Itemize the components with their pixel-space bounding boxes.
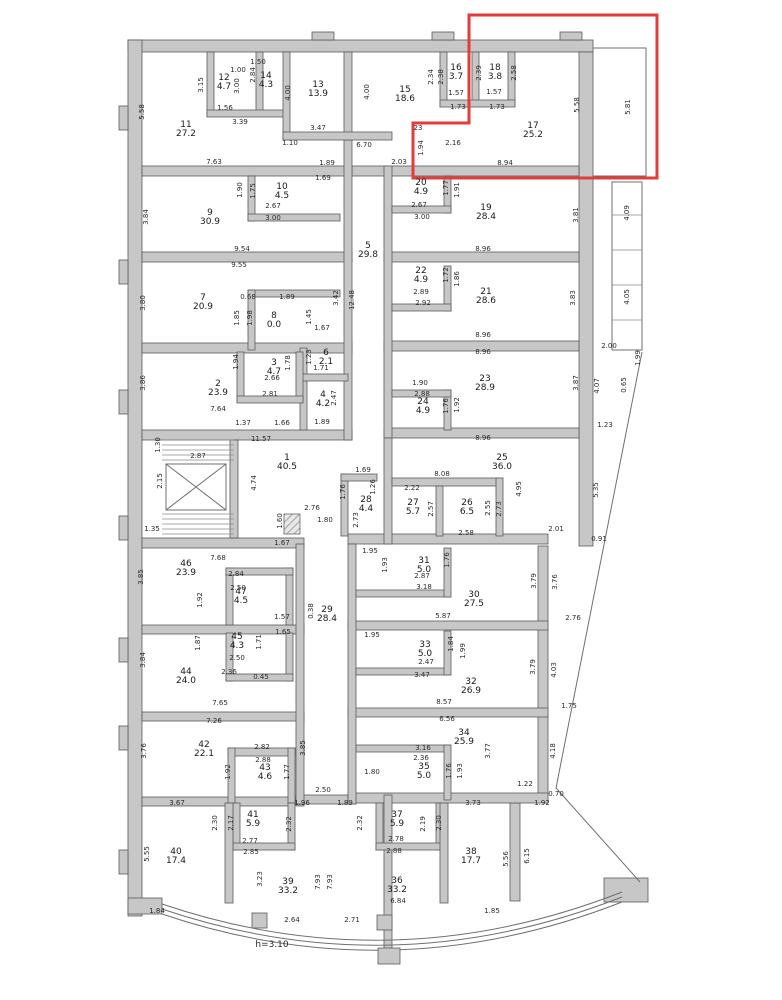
dimension-label: 3.80 bbox=[139, 295, 147, 311]
dimension-label: 3.15 bbox=[197, 77, 205, 93]
dimension-label: 3.79 bbox=[530, 573, 538, 589]
dimension-label: 1.77 bbox=[283, 764, 291, 780]
dimension-label: 2.01 bbox=[548, 525, 564, 533]
room-label-10: 104.5 bbox=[275, 183, 289, 201]
dimension-label: 2.55 bbox=[484, 500, 492, 516]
dimension-label: 3.39 bbox=[232, 118, 248, 126]
room-label-38: 3817.7 bbox=[461, 848, 481, 866]
dimension-label: 2.17 bbox=[227, 815, 235, 831]
room-label-23: 2328.9 bbox=[475, 375, 495, 393]
dimension-label: 1.76 bbox=[339, 484, 347, 500]
dimension-label: 1.72 bbox=[442, 267, 450, 283]
dimension-label: 3.81 bbox=[572, 207, 580, 223]
dimension-label: 4.03 bbox=[550, 662, 558, 678]
dimension-label: 1.22 bbox=[517, 780, 533, 788]
dimension-label: 1.89 bbox=[279, 293, 295, 301]
dimension-label: 2.64 bbox=[284, 916, 300, 924]
dimension-label: 1.73 bbox=[450, 103, 466, 111]
dimension-label: 7.65 bbox=[212, 699, 228, 707]
room-label-21: 2128.6 bbox=[476, 288, 496, 306]
dimension-label: 1.75 bbox=[561, 702, 577, 710]
dimension-label: 1.85 bbox=[484, 907, 500, 915]
dimension-label: 3.16 bbox=[415, 744, 431, 752]
room-label-15: 1518.6 bbox=[395, 86, 415, 104]
dimension-label: 1.92 bbox=[534, 799, 550, 807]
dimension-label: 7.64 bbox=[210, 405, 226, 413]
room-label-18: 183.8 bbox=[488, 64, 502, 82]
dimension-label: 5.58 bbox=[573, 97, 581, 113]
room-label-11: 1127.2 bbox=[176, 121, 196, 139]
dimension-label: 1.57 bbox=[274, 613, 290, 621]
dimension-label: 1.66 bbox=[274, 419, 290, 427]
dimension-label: 1.60 bbox=[276, 513, 284, 529]
dimension-label: 2.88 bbox=[414, 390, 430, 398]
room-label-4: 44.2 bbox=[316, 391, 330, 409]
dimension-label: 2.87 bbox=[190, 452, 206, 460]
dimension-label: 4.00 bbox=[284, 85, 292, 101]
dimension-label: 2.84 bbox=[228, 570, 244, 578]
room-label-29: 2928.4 bbox=[317, 606, 337, 624]
room-label-41: 415.9 bbox=[246, 811, 260, 829]
dimension-label: 5.58 bbox=[138, 104, 146, 120]
dimension-label: 1.57 bbox=[486, 88, 502, 96]
dimension-label: 1.85 bbox=[233, 310, 241, 326]
dimension-label: 8.96 bbox=[475, 331, 491, 339]
dimension-label: 3.76 bbox=[140, 743, 148, 759]
dimension-label: 3.87 bbox=[572, 375, 580, 391]
dimension-label: 12.48 bbox=[348, 290, 356, 310]
dimension-label: 1.86 bbox=[453, 271, 461, 287]
dimension-label: 7.93 bbox=[314, 874, 322, 890]
dimension-label: 2.36 bbox=[221, 668, 237, 676]
dimension-label: 1.80 bbox=[317, 516, 333, 524]
room-label-40: 4017.4 bbox=[166, 848, 186, 866]
dimension-label: 1.84 bbox=[149, 907, 165, 915]
dimension-label: 1.69 bbox=[355, 466, 371, 474]
dimension-label: 3.00 bbox=[414, 213, 430, 221]
dimension-label: 5.55 bbox=[143, 846, 151, 862]
room-label-20: 204.9 bbox=[414, 179, 428, 197]
dimension-label: 2.85 bbox=[243, 848, 259, 856]
dimension-label: 2.88 bbox=[255, 756, 271, 764]
dimension-label: 2.50 bbox=[315, 786, 331, 794]
dimension-label: 2.00 bbox=[601, 342, 617, 350]
dimension-label: 7.68 bbox=[210, 554, 226, 562]
dimension-label: 11.57 bbox=[251, 435, 271, 443]
dimension-label: 1.94 bbox=[417, 140, 425, 156]
dimension-label: 5.56 bbox=[502, 851, 510, 867]
dimension-label: 1.71 bbox=[255, 634, 263, 650]
dimension-label: 2.15 bbox=[156, 473, 164, 489]
room-label-35: 355.0 bbox=[417, 763, 431, 781]
dimension-label: 2.87 bbox=[414, 572, 430, 580]
dimension-label: 1.73 bbox=[489, 103, 505, 111]
dimension-label: 0.91 bbox=[591, 535, 607, 543]
dimension-label: 1.99 bbox=[459, 643, 467, 659]
dimension-label: 1.90 bbox=[412, 379, 428, 387]
dimension-label: 1.80 bbox=[364, 768, 380, 776]
dimension-label: 1.10 bbox=[282, 139, 298, 147]
dimension-label: 1.37 bbox=[235, 419, 251, 427]
dimension-label: 2.47 bbox=[418, 658, 434, 666]
dimension-label: 2.50 bbox=[230, 584, 246, 592]
dimension-label: 1.84 bbox=[447, 636, 455, 652]
room-label-24: 244.9 bbox=[416, 398, 430, 416]
room-label-32: 3226.9 bbox=[461, 678, 481, 696]
dimension-label: 1.57 bbox=[448, 89, 464, 97]
dimension-label: 1.45 bbox=[305, 309, 313, 325]
dimension-label: 0.45 bbox=[253, 673, 269, 681]
room-label-42: 4222.1 bbox=[194, 741, 214, 759]
room-label-39: 3933.2 bbox=[278, 878, 298, 896]
room-label-25: 2536.0 bbox=[492, 454, 512, 472]
dimension-label: 1.76 bbox=[442, 398, 450, 414]
dimension-label: 3.77 bbox=[484, 743, 492, 759]
dimension-label: 4.05 bbox=[623, 289, 631, 305]
dimension-label: 1.67 bbox=[274, 539, 290, 547]
dimension-label: 3.00 bbox=[265, 214, 281, 222]
dimension-label: 8.96 bbox=[475, 434, 491, 442]
dimension-label: 1.95 bbox=[362, 547, 378, 555]
dimension-label: 3.73 bbox=[465, 799, 481, 807]
dimension-label: 5.81 bbox=[624, 99, 632, 115]
dimension-label: 3.83 bbox=[569, 290, 577, 306]
dimension-label: 3.85 bbox=[299, 740, 307, 756]
dimension-label: 0.68 bbox=[240, 293, 256, 301]
dimension-label: 8.96 bbox=[475, 348, 491, 356]
room-label-1: 140.5 bbox=[277, 454, 297, 472]
dimension-label: 2.38 bbox=[437, 69, 445, 85]
dimension-label: 2.89 bbox=[413, 288, 429, 296]
dimension-label: 2.67 bbox=[265, 202, 281, 210]
dimension-label: 4.00 bbox=[363, 84, 371, 100]
dimension-label: 1.67 bbox=[314, 324, 330, 332]
dimension-label: 6.84 bbox=[390, 897, 406, 905]
dimension-label: 3.67 bbox=[169, 799, 185, 807]
dimension-label: 2.50 bbox=[229, 654, 245, 662]
dimension-label: 7.26 bbox=[206, 717, 222, 725]
dimension-label: 2.84 bbox=[249, 67, 257, 83]
dimension-label: 1.56 bbox=[217, 104, 233, 112]
dimension-label: 0.38 bbox=[307, 603, 315, 619]
dimension-label: 1.78 bbox=[284, 355, 292, 371]
dimension-label: 7.93 bbox=[326, 874, 334, 890]
room-label-46: 4623.9 bbox=[176, 560, 196, 578]
dimension-label: 6.70 bbox=[356, 141, 372, 149]
dimension-label: 1.76 bbox=[443, 552, 451, 568]
room-label-33: 335.0 bbox=[418, 641, 432, 659]
dimension-label: 1.89 bbox=[314, 418, 330, 426]
dimension-label: 1.96 bbox=[294, 799, 310, 807]
room-label-28: 284.4 bbox=[359, 496, 373, 514]
dimension-label: 1.93 bbox=[381, 557, 389, 573]
dimension-label: 3.76 bbox=[551, 574, 559, 590]
room-label-2: 223.9 bbox=[208, 380, 228, 398]
dimension-label: 2.39 bbox=[475, 65, 483, 81]
dimension-label: 2.58 bbox=[510, 65, 518, 81]
dimension-label: 1.23 bbox=[305, 349, 313, 365]
room-label-16: 163.7 bbox=[449, 64, 463, 82]
dimension-label: 1.23 bbox=[597, 421, 613, 429]
dimension-label: 1.75 bbox=[249, 183, 257, 199]
dimension-label: 6.15 bbox=[523, 848, 531, 864]
dimension-label: 5.87 bbox=[435, 612, 451, 620]
dimension-label: 1.94 bbox=[232, 354, 240, 370]
floorplan-canvas: 140.5223.934.744.2529.862.1720.980.0930.… bbox=[0, 0, 782, 1000]
dimension-label: 2.73 bbox=[495, 501, 503, 517]
dimension-label: 1.89 bbox=[319, 159, 335, 167]
dimension-label: 2.16 bbox=[445, 139, 461, 147]
room-label-22: 224.9 bbox=[414, 267, 428, 285]
dimension-label: 8.94 bbox=[497, 159, 513, 167]
dimension-label: 4.74 bbox=[250, 475, 258, 491]
dimension-label: 1.93 bbox=[456, 763, 464, 779]
dimension-label: 7.63 bbox=[206, 158, 222, 166]
dimension-label: 2.30 bbox=[435, 815, 443, 831]
room-label-9: 930.9 bbox=[200, 209, 220, 227]
dimension-label: 4.95 bbox=[515, 481, 523, 497]
dimension-label: h=3.10 bbox=[255, 940, 288, 950]
dimension-label: 0.65 bbox=[620, 377, 628, 393]
dimension-label: 2.77 bbox=[242, 837, 258, 845]
dimension-label: 8.96 bbox=[475, 245, 491, 253]
room-label-43: 434.6 bbox=[258, 764, 272, 782]
dimension-label: 2.03 bbox=[391, 158, 407, 166]
room-label-36: 3633.2 bbox=[387, 877, 407, 895]
dimension-label: 2.78 bbox=[388, 835, 404, 843]
dimension-label: 1.89 bbox=[337, 799, 353, 807]
dimension-label: 1.71 bbox=[313, 364, 329, 372]
dimension-label: 1.30 bbox=[154, 437, 162, 453]
dimension-label: 4.09 bbox=[623, 205, 631, 221]
dimension-label: 4.18 bbox=[549, 743, 557, 759]
dimension-label: 4.07 bbox=[593, 378, 601, 394]
room-label-7: 720.9 bbox=[193, 294, 213, 312]
dimension-label: 2.34 bbox=[427, 69, 435, 85]
dimension-label: 1.26 bbox=[369, 479, 377, 495]
dimension-label: 2.76 bbox=[304, 504, 320, 512]
dimension-label: 2.22 bbox=[404, 484, 420, 492]
dimension-label: 1.99 bbox=[634, 350, 642, 366]
room-label-44: 4424.0 bbox=[176, 668, 196, 686]
dimension-label: 2.47 bbox=[330, 390, 338, 406]
dimension-label: 2.76 bbox=[565, 614, 581, 622]
dimension-label: 5.35 bbox=[592, 482, 600, 498]
dimension-label: 2.71 bbox=[344, 916, 360, 924]
labels-layer: 140.5223.934.744.2529.862.1720.980.0930.… bbox=[0, 0, 782, 1000]
room-label-26: 266.5 bbox=[460, 499, 474, 517]
room-label-34: 3425.9 bbox=[454, 729, 474, 747]
dimension-label: 1.50 bbox=[250, 58, 266, 66]
dimension-label: 1.76 bbox=[445, 763, 453, 779]
room-label-8: 80.0 bbox=[267, 312, 281, 330]
dimension-label: 23 bbox=[414, 124, 423, 132]
dimension-label: 1.92 bbox=[196, 592, 204, 608]
dimension-label: 1.92 bbox=[453, 397, 461, 413]
dimension-label: 3.84 bbox=[139, 652, 147, 668]
dimension-label: 2.32 bbox=[356, 815, 364, 831]
room-label-19: 1928.4 bbox=[476, 204, 496, 222]
dimension-label: 1.69 bbox=[315, 174, 331, 182]
dimension-label: 9.54 bbox=[234, 245, 250, 253]
dimension-label: 3.79 bbox=[529, 659, 537, 675]
dimension-label: 1.98 bbox=[246, 310, 254, 326]
dimension-label: 9.55 bbox=[231, 261, 247, 269]
dimension-label: 2.19 bbox=[419, 816, 427, 832]
dimension-label: 2.88 bbox=[386, 847, 402, 855]
dimension-label: 3.42 bbox=[332, 290, 340, 306]
dimension-label: 3.23 bbox=[256, 871, 264, 887]
dimension-label: 8.57 bbox=[436, 698, 452, 706]
dimension-label: 1.65 bbox=[275, 628, 291, 636]
dimension-label: 2.66 bbox=[264, 374, 280, 382]
dimension-label: 1.87 bbox=[194, 635, 202, 651]
dimension-label: 2.36 bbox=[413, 754, 429, 762]
dimension-label: 2.73 bbox=[352, 512, 360, 528]
dimension-label: 3.47 bbox=[414, 671, 430, 679]
room-label-45: 454.3 bbox=[230, 633, 244, 651]
dimension-label: 3.47 bbox=[310, 124, 326, 132]
dimension-label: 2.32 bbox=[285, 816, 293, 832]
dimension-label: 1.95 bbox=[364, 631, 380, 639]
room-label-17: 1725.2 bbox=[523, 122, 543, 140]
dimension-label: 2.30 bbox=[211, 815, 219, 831]
room-label-5: 529.8 bbox=[358, 242, 378, 260]
room-label-12: 124.7 bbox=[217, 74, 231, 92]
dimension-label: 2.81 bbox=[262, 390, 278, 398]
dimension-label: 1.90 bbox=[236, 182, 244, 198]
dimension-label: 2.57 bbox=[427, 501, 435, 517]
dimension-label: 2.67 bbox=[411, 201, 427, 209]
dimension-label: 2.82 bbox=[254, 743, 270, 751]
dimension-label: 3.84 bbox=[142, 209, 150, 225]
dimension-label: 1.91 bbox=[453, 182, 461, 198]
dimension-label: 1.35 bbox=[144, 525, 160, 533]
room-label-37: 375.9 bbox=[390, 811, 404, 829]
dimension-label: 3.86 bbox=[139, 375, 147, 391]
dimension-label: 1.00 bbox=[230, 66, 246, 74]
dimension-label: 0.70 bbox=[548, 790, 564, 798]
dimension-label: 1.77 bbox=[442, 180, 450, 196]
room-label-13: 1313.9 bbox=[308, 81, 328, 99]
dimension-label: 3.18 bbox=[416, 583, 432, 591]
dimension-label: 3.00 bbox=[233, 78, 241, 94]
dimension-label: 8.08 bbox=[434, 470, 450, 478]
room-label-30: 3027.5 bbox=[464, 591, 484, 609]
dimension-label: 2.58 bbox=[458, 529, 474, 537]
dimension-label: 6.56 bbox=[439, 715, 455, 723]
dimension-label: 1.92 bbox=[224, 764, 232, 780]
room-label-27: 275.7 bbox=[406, 499, 420, 517]
dimension-label: 2.92 bbox=[415, 299, 431, 307]
dimension-label: 3.85 bbox=[137, 569, 145, 585]
room-label-14: 144.3 bbox=[259, 72, 273, 90]
